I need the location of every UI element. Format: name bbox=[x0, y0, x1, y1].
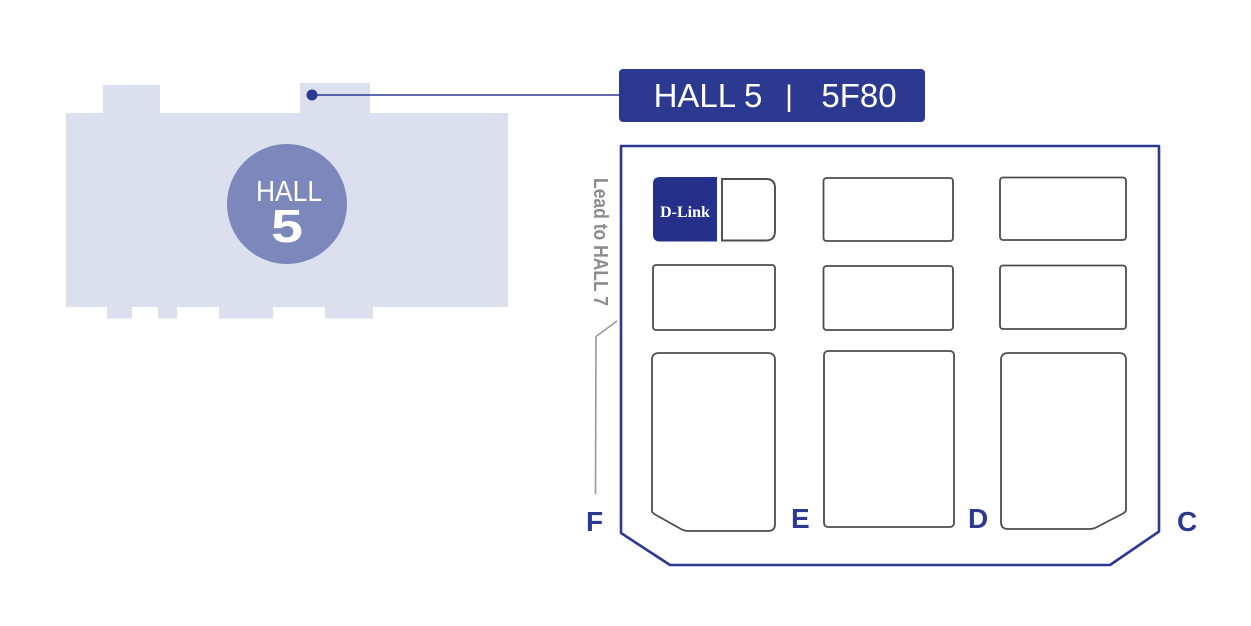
svg-text:5F80: 5F80 bbox=[821, 77, 896, 114]
svg-text:HALL 5: HALL 5 bbox=[654, 77, 763, 114]
svg-text:Lead to HALL 7: Lead to HALL 7 bbox=[589, 178, 611, 306]
svg-text:5: 5 bbox=[271, 201, 303, 252]
svg-text:D: D bbox=[968, 503, 988, 534]
svg-text:|: | bbox=[785, 80, 793, 113]
svg-text:F: F bbox=[586, 506, 603, 537]
svg-text:D-Link: D-Link bbox=[660, 204, 710, 221]
svg-text:C: C bbox=[1177, 506, 1197, 537]
svg-text:E: E bbox=[791, 503, 810, 534]
